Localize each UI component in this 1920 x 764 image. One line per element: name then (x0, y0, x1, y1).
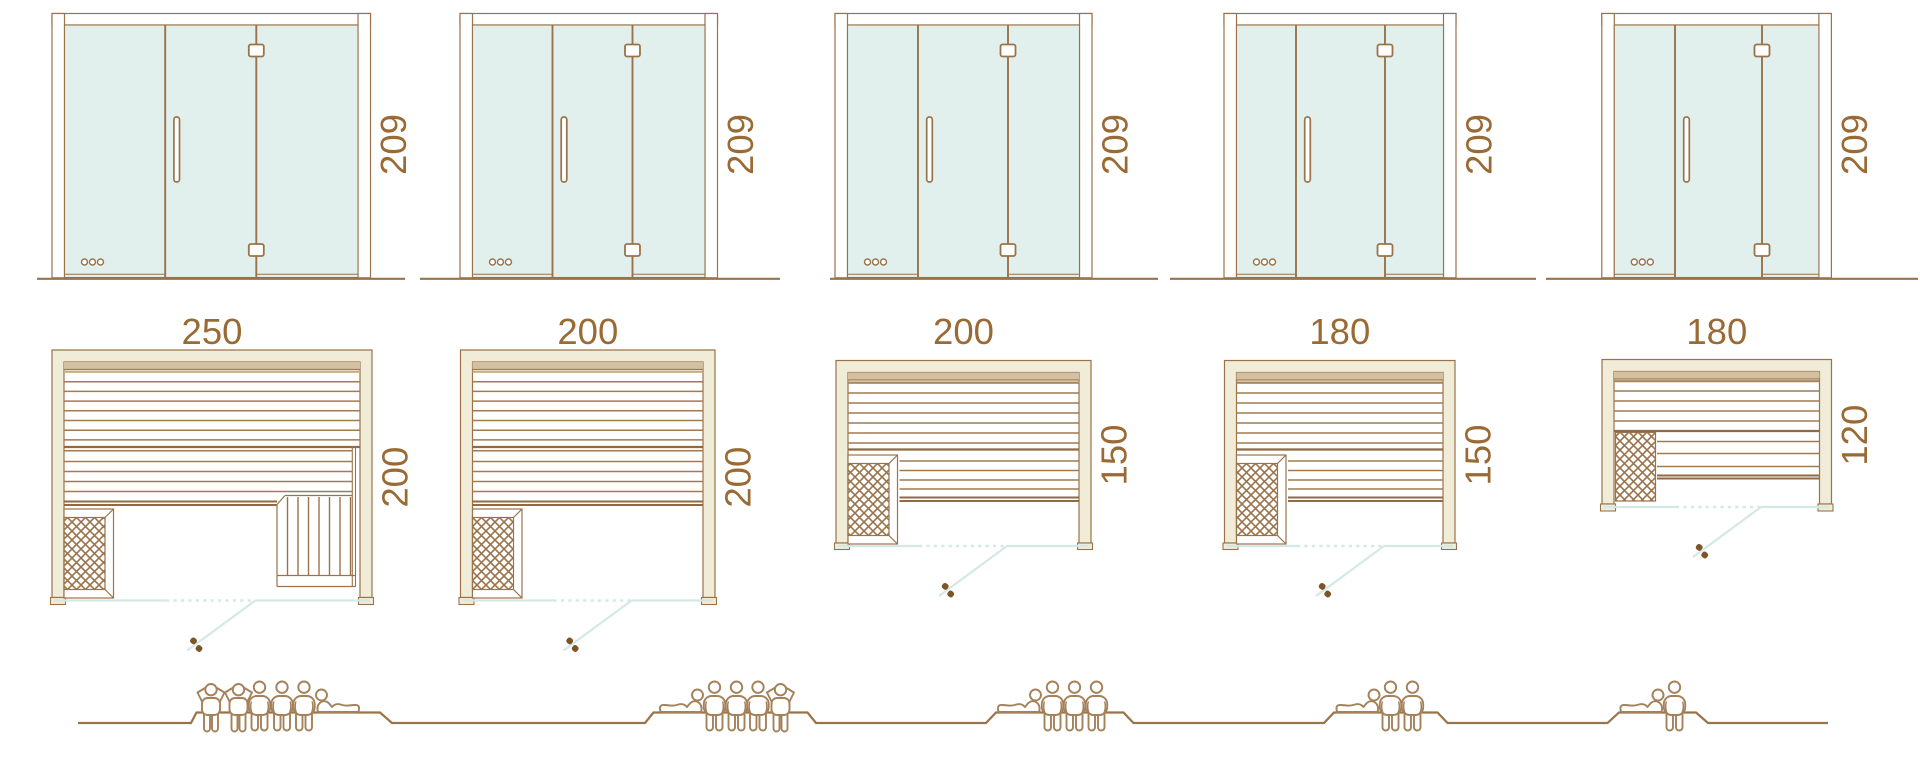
svg-text:200: 200 (557, 311, 618, 352)
svg-text:209: 209 (1095, 114, 1136, 175)
svg-text:209: 209 (1459, 114, 1500, 175)
svg-text:150: 150 (1094, 425, 1135, 486)
svg-text:200: 200 (933, 311, 994, 352)
svg-text:209: 209 (1834, 114, 1875, 175)
svg-text:209: 209 (373, 114, 414, 175)
svg-text:200: 200 (718, 447, 759, 508)
svg-text:180: 180 (1309, 311, 1370, 352)
svg-text:150: 150 (1458, 425, 1499, 486)
svg-text:180: 180 (1686, 311, 1747, 352)
svg-text:209: 209 (720, 114, 761, 175)
svg-text:200: 200 (375, 447, 416, 508)
svg-text:120: 120 (1834, 405, 1875, 466)
svg-text:250: 250 (182, 311, 243, 352)
